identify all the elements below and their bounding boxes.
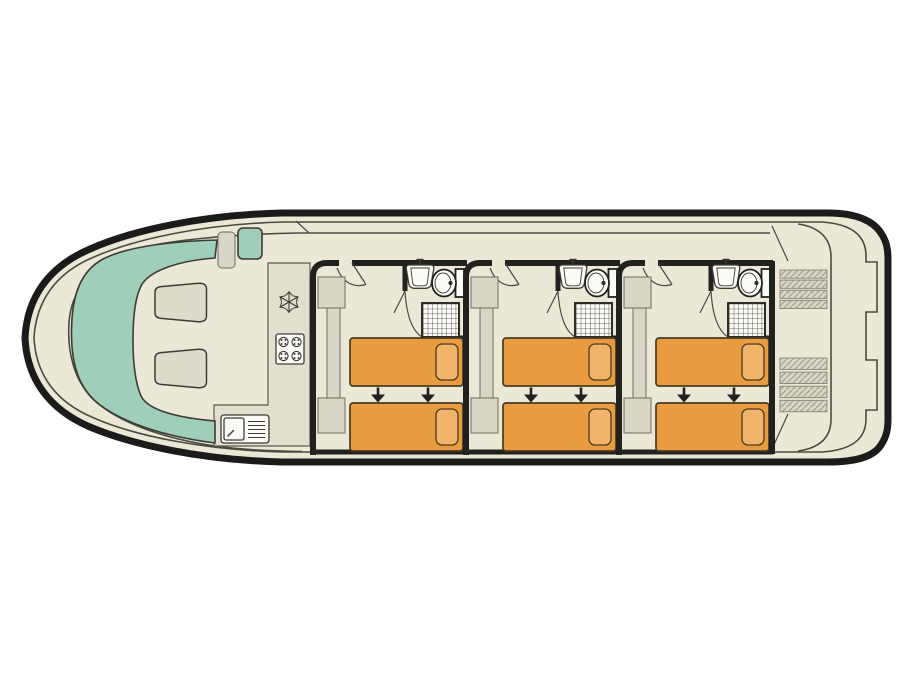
seat-table [155, 283, 207, 321]
boat-floor-plan [0, 0, 900, 675]
helm-seat [218, 232, 235, 268]
sink-unit [221, 415, 269, 443]
hob-icon [276, 334, 304, 364]
seat-table [155, 349, 207, 387]
helm-seat-teal [238, 228, 262, 259]
